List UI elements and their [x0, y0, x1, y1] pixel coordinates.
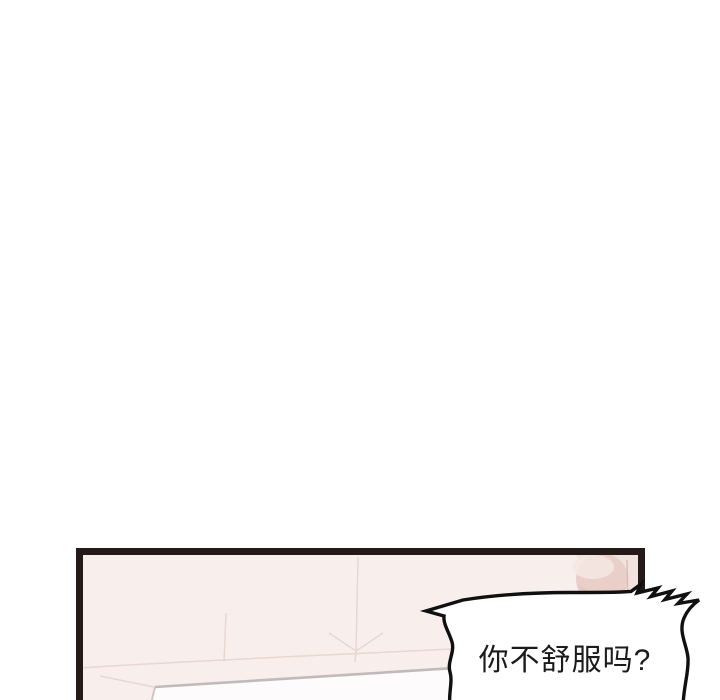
dialogue-text: 你不舒服吗?: [452, 639, 678, 675]
comic-panel-canvas: [0, 0, 720, 700]
comic-page: 你不舒服吗?: [0, 0, 720, 700]
corner-object-highlight: [572, 555, 614, 579]
